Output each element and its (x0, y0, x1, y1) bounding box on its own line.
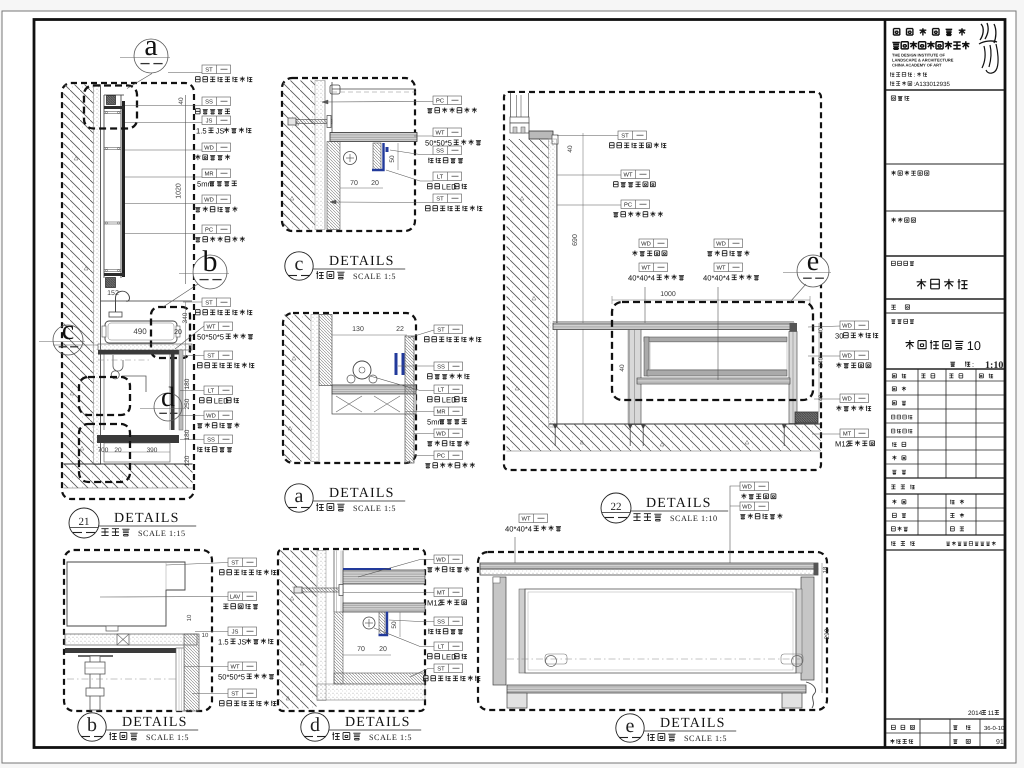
svg-text:70: 70 (357, 646, 365, 653)
svg-text:JS: JS (232, 628, 239, 635)
svg-text:ST: ST (437, 665, 445, 672)
svg-text:WT: WT (623, 172, 632, 178)
svg-text:WD: WD (436, 431, 446, 437)
svg-text:2014: 2014 (968, 710, 983, 717)
svg-text:50*50*5: 50*50*5 (197, 333, 224, 342)
svg-text:21: 21 (79, 516, 90, 528)
svg-text:SCALE 1:5: SCALE 1:5 (353, 272, 396, 281)
svg-text:ST: ST (621, 132, 629, 139)
svg-text:PC: PC (205, 226, 213, 233)
svg-text:WD: WD (842, 323, 852, 329)
svg-text:WD: WD (742, 504, 752, 510)
svg-text:ST: ST (205, 299, 213, 306)
svg-text:490: 490 (133, 327, 147, 336)
svg-text:390: 390 (147, 447, 158, 454)
svg-text:290: 290 (824, 628, 831, 639)
svg-text:40: 40 (567, 145, 574, 153)
svg-text:10: 10 (202, 632, 209, 639)
svg-text:LAV: LAV (230, 594, 241, 600)
svg-text:30: 30 (835, 332, 843, 341)
svg-text:WT: WT (230, 664, 239, 670)
svg-text:WT: WT (641, 265, 650, 271)
svg-text:10: 10 (186, 614, 193, 621)
svg-text:c: c (295, 253, 304, 275)
svg-text:240: 240 (818, 356, 825, 367)
svg-text:LT: LT (438, 387, 445, 393)
svg-text:ST: ST (231, 559, 239, 566)
svg-text:40: 40 (178, 97, 185, 105)
svg-text:SCALE 1:5: SCALE 1:5 (353, 504, 396, 513)
svg-text:WT: WT (206, 324, 215, 330)
svg-text:MR: MR (204, 171, 213, 177)
svg-text:DETAILS: DETAILS (122, 715, 188, 730)
svg-text:WD: WD (641, 241, 651, 247)
svg-text:22: 22 (611, 501, 622, 513)
svg-text:20: 20 (371, 180, 379, 187)
svg-text::A133012935: :A133012935 (914, 81, 951, 88)
svg-text:250: 250 (184, 398, 191, 409)
svg-text:SCALE 1:5: SCALE 1:5 (684, 734, 727, 743)
svg-text:40: 40 (818, 327, 825, 334)
svg-text:1.5: 1.5 (196, 127, 207, 136)
svg-text:DETAILS: DETAILS (329, 254, 395, 269)
svg-text:e: e (807, 246, 819, 277)
svg-text:SCALE 1:5: SCALE 1:5 (369, 733, 412, 742)
svg-text:130: 130 (352, 326, 364, 333)
svg-text:WD: WD (204, 197, 214, 203)
svg-text:WT: WT (435, 130, 444, 136)
svg-text:120: 120 (184, 455, 191, 466)
svg-text:MT: MT (437, 590, 446, 596)
svg-text:40*40*4: 40*40*4 (703, 274, 730, 283)
svg-text:20: 20 (174, 329, 182, 336)
svg-text:LT: LT (438, 644, 445, 650)
svg-text:WT: WT (716, 265, 725, 271)
svg-text:e: e (626, 715, 635, 737)
svg-text:20: 20 (379, 646, 387, 653)
svg-text:DETAILS: DETAILS (345, 715, 411, 730)
svg-text:180: 180 (184, 429, 191, 440)
svg-text:1020: 1020 (176, 183, 183, 199)
svg-text:SCALE 1:5: SCALE 1:5 (146, 733, 189, 742)
svg-text:40*40*4: 40*40*4 (505, 525, 532, 534)
svg-text:ST: ST (436, 195, 444, 202)
svg-text:WD: WD (842, 396, 852, 402)
svg-text:LT: LT (437, 174, 444, 180)
svg-text:SCALE 1:10: SCALE 1:10 (670, 514, 718, 523)
svg-text:MR: MR (436, 409, 445, 415)
svg-text:690: 690 (572, 234, 579, 246)
svg-text:LT: LT (208, 388, 215, 394)
svg-text:c: c (62, 315, 74, 346)
svg-text:PC: PC (437, 452, 445, 459)
svg-text:1000: 1000 (660, 291, 676, 298)
svg-text:WD: WD (842, 353, 852, 359)
svg-text::: : (972, 360, 974, 369)
svg-text:SS: SS (207, 436, 215, 443)
svg-text:50: 50 (389, 155, 396, 163)
svg-text:WD: WD (204, 145, 214, 151)
svg-text:91: 91 (996, 739, 1004, 746)
svg-text:WD: WD (436, 557, 446, 563)
svg-text:ST: ST (207, 352, 215, 359)
svg-text:11: 11 (988, 710, 995, 717)
svg-text:10: 10 (967, 339, 981, 353)
svg-text:50*50*5: 50*50*5 (218, 673, 245, 682)
svg-text:ST: ST (437, 326, 445, 333)
svg-text:SS: SS (437, 618, 445, 625)
svg-text:WD: WD (742, 484, 752, 490)
svg-text:DETAILS: DETAILS (646, 496, 712, 511)
svg-text:PC: PC (436, 97, 444, 104)
svg-text:ST: ST (205, 66, 213, 73)
svg-text:DETAILS: DETAILS (114, 511, 180, 526)
svg-text:ST: ST (231, 690, 239, 697)
svg-text:40*40*4: 40*40*4 (628, 274, 655, 283)
svg-text:JS: JS (238, 638, 247, 647)
svg-text:SS: SS (205, 98, 213, 105)
svg-text:b: b (203, 245, 218, 278)
svg-text:700: 700 (98, 447, 109, 454)
svg-text:JS: JS (216, 127, 225, 136)
svg-text:a: a (144, 29, 157, 62)
svg-text:CHINA ACADEMY OF ART: CHINA ACADEMY OF ART (892, 63, 942, 68)
svg-text:40: 40 (818, 394, 825, 401)
svg-text:WD: WD (716, 241, 726, 247)
svg-text:1.5: 1.5 (218, 638, 229, 647)
svg-text:SS: SS (437, 363, 445, 370)
svg-text:SCALE 1:15: SCALE 1:15 (138, 529, 186, 538)
svg-text:d: d (161, 382, 175, 413)
svg-text:36-0-10: 36-0-10 (984, 725, 1005, 732)
svg-text:20: 20 (114, 447, 122, 454)
svg-text:DETAILS: DETAILS (329, 486, 395, 501)
svg-text:50: 50 (391, 621, 398, 629)
svg-text::: : (914, 72, 916, 79)
svg-text:SS: SS (436, 147, 444, 154)
svg-text:1:10: 1:10 (985, 360, 1003, 371)
svg-text:WD: WD (206, 413, 216, 419)
svg-text:PC: PC (624, 201, 632, 208)
svg-text:a: a (295, 485, 304, 507)
svg-text:MT: MT (843, 431, 852, 437)
svg-text:WT: WT (521, 516, 530, 522)
svg-text:JS: JS (206, 117, 213, 124)
svg-text:DETAILS: DETAILS (660, 716, 726, 731)
svg-text:b: b (87, 714, 97, 736)
svg-text:40: 40 (619, 364, 626, 372)
svg-text:18: 18 (822, 566, 829, 573)
svg-text:d: d (310, 714, 320, 736)
svg-text:22: 22 (396, 326, 404, 333)
svg-text:180: 180 (184, 378, 191, 389)
svg-text:70: 70 (350, 180, 358, 187)
